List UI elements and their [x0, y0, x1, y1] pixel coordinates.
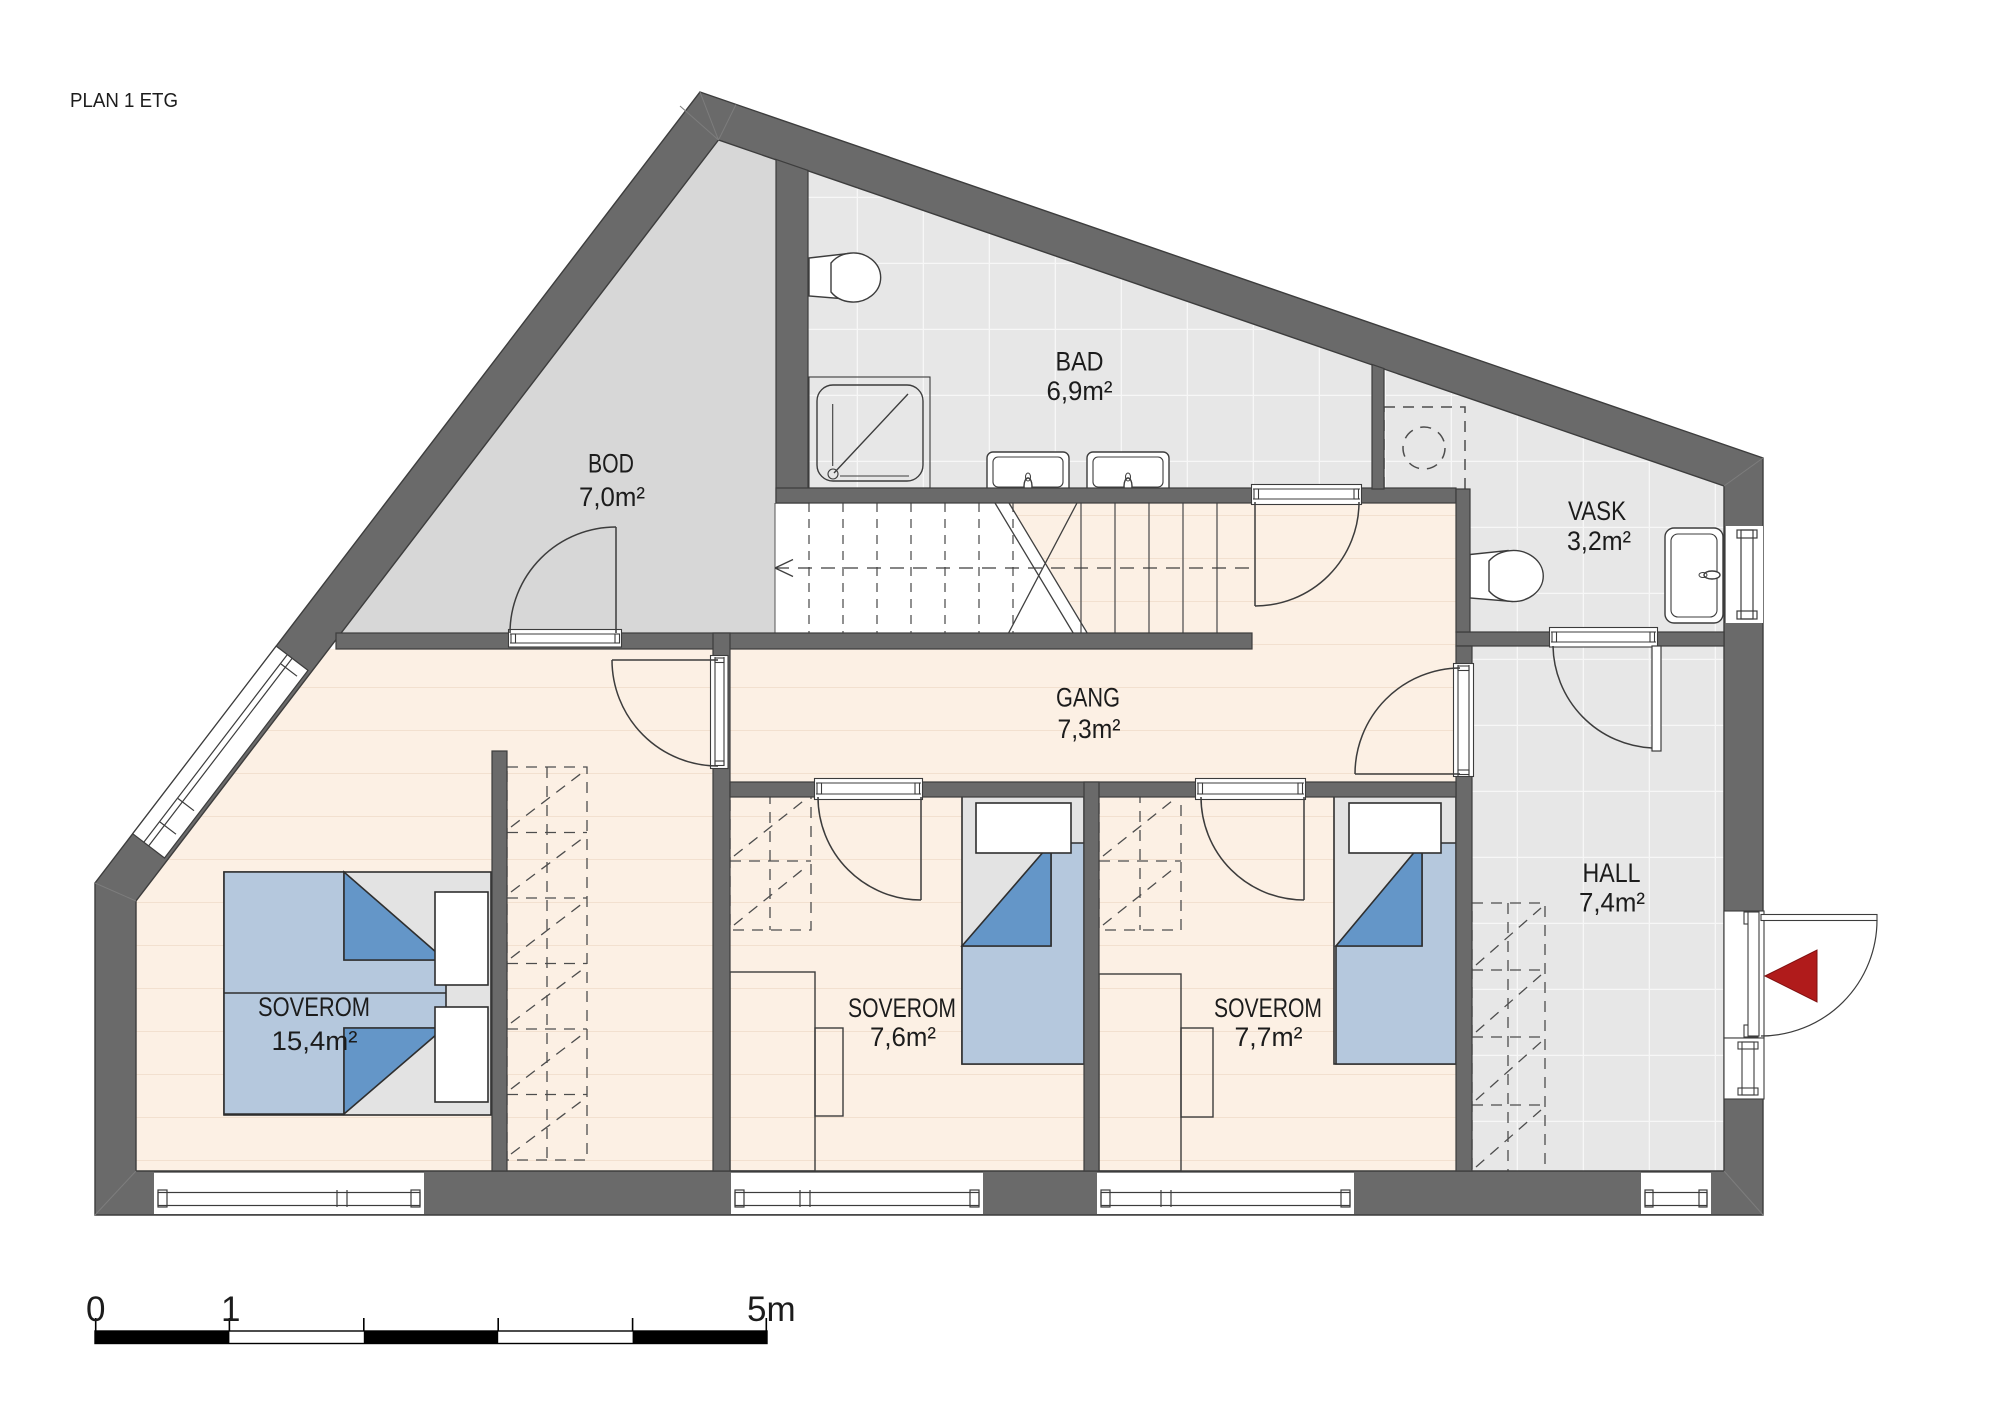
- svg-text:VASK: VASK: [1568, 496, 1626, 526]
- svg-text:7,6m²: 7,6m²: [870, 1022, 936, 1052]
- svg-text:7,7m²: 7,7m²: [1235, 1022, 1303, 1052]
- svg-text:BOD: BOD: [588, 449, 634, 479]
- svg-text:6,9m²: 6,9m²: [1047, 376, 1113, 406]
- svg-text:7,4m²: 7,4m²: [1579, 888, 1645, 918]
- svg-text:0: 0: [86, 1290, 105, 1329]
- svg-text:HALL: HALL: [1583, 858, 1641, 888]
- svg-text:7,0m²: 7,0m²: [579, 482, 645, 512]
- svg-text:SOVEROM: SOVEROM: [848, 993, 956, 1023]
- svg-text:BAD: BAD: [1056, 346, 1104, 376]
- svg-text:15,4m²: 15,4m²: [272, 1026, 358, 1056]
- svg-text:5m: 5m: [747, 1290, 796, 1329]
- svg-text:SOVEROM: SOVEROM: [258, 992, 370, 1022]
- svg-text:PLAN 1 ETG: PLAN 1 ETG: [70, 89, 178, 112]
- svg-text:7,3m²: 7,3m²: [1058, 714, 1121, 744]
- svg-text:3,2m²: 3,2m²: [1567, 526, 1631, 556]
- svg-text:1: 1: [221, 1290, 240, 1329]
- svg-text:GANG: GANG: [1056, 683, 1120, 713]
- svg-text:SOVEROM: SOVEROM: [1214, 993, 1322, 1023]
